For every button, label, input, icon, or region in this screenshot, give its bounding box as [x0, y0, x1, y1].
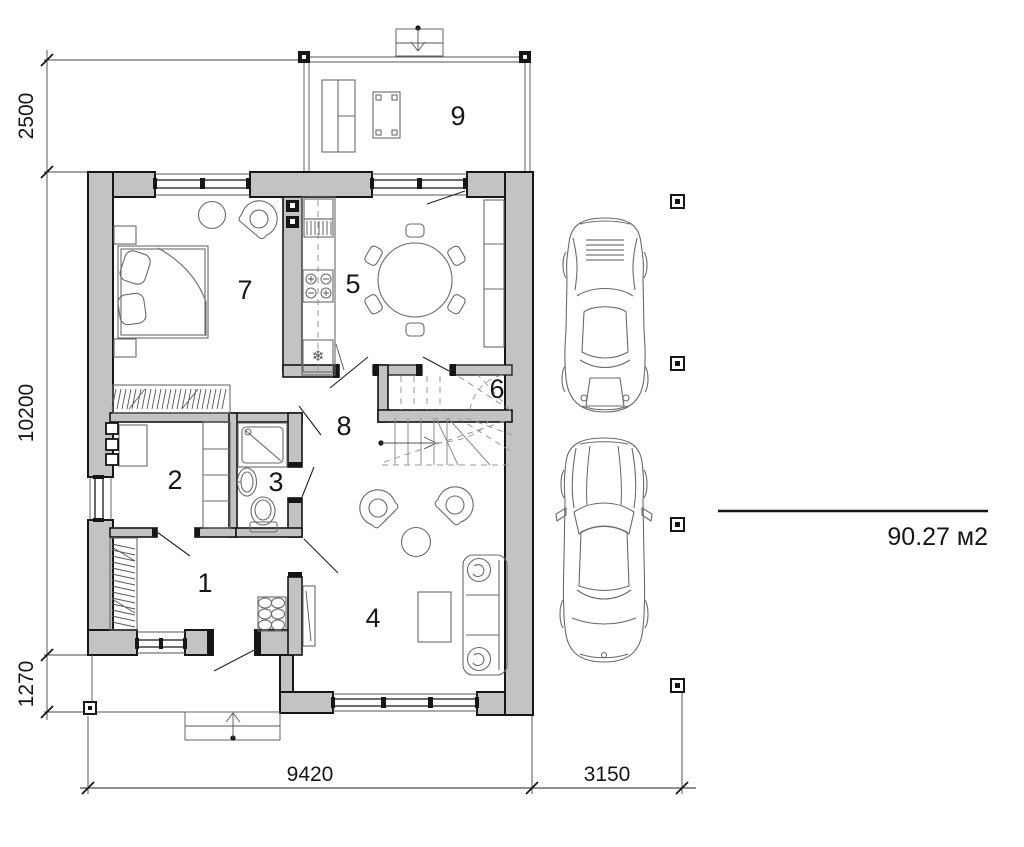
coffee-table-icon [402, 528, 431, 557]
shower-icon [238, 423, 287, 467]
nightstand-icon [114, 339, 136, 357]
mirror-icon [303, 586, 315, 646]
room-label-2: 2 [167, 465, 182, 495]
room-label-8: 8 [336, 411, 351, 441]
wardrobe-icon [203, 422, 230, 528]
porch-steps-icon [185, 712, 280, 741]
living-furniture [352, 479, 507, 675]
floor-plan-drawing: 2500 10200 1270 9420 3150 [0, 0, 1024, 847]
dim-left-2500: 2500 [15, 93, 38, 140]
kitchen-furniture: ❄ [302, 197, 504, 375]
dim-left-1270: 1270 [15, 661, 38, 708]
car-icon [556, 438, 652, 662]
sideboard-icon [484, 200, 504, 347]
armchair-icon [432, 479, 480, 527]
bed-icon [117, 246, 208, 338]
porch-post-icon [84, 702, 96, 714]
svg-text:❄: ❄ [312, 348, 325, 365]
room-label-6: 6 [489, 374, 504, 404]
bedroom-furniture [112, 193, 285, 413]
room-label-5: 5 [345, 269, 360, 299]
nightstand-icon [114, 226, 136, 244]
floor-plan-page: 2500 10200 1270 9420 3150 [0, 0, 1024, 847]
area-label: 90.27 м2 [887, 523, 988, 551]
toilet-icon [250, 497, 277, 532]
table-icon [418, 592, 451, 642]
room-label-9: 9 [450, 101, 465, 131]
terrace-step-icon [396, 25, 443, 56]
closet-icon [112, 385, 230, 413]
sofa-icon [463, 555, 507, 675]
bench-icon [258, 597, 286, 631]
hall-wardrobe-icon [110, 538, 137, 630]
car-icon [562, 218, 648, 412]
column-icon [671, 195, 684, 692]
terrace-table-icon [373, 92, 400, 138]
meter-box-icon [106, 423, 118, 465]
armchair-icon [236, 193, 284, 241]
terrace-bench-icon [322, 80, 355, 152]
carport [556, 195, 684, 692]
cooktop-icon [303, 270, 333, 302]
room-label-1: 1 [197, 568, 212, 598]
kitchen-counter-icon: ❄ [302, 197, 344, 375]
area-note: 90.27 м2 [718, 511, 988, 551]
dim-left-10200: 10200 [15, 384, 38, 442]
dim-bottom-3150: 3150 [584, 763, 631, 786]
room-label-3: 3 [268, 467, 283, 497]
room-label-7: 7 [237, 275, 252, 305]
washer-icon [119, 425, 147, 466]
armchair-icon [352, 482, 400, 530]
room-label-4: 4 [365, 603, 380, 633]
sink-icon [237, 468, 257, 496]
porch [84, 655, 280, 741]
dining-table-icon [363, 224, 466, 336]
terrace [298, 25, 531, 172]
stool-icon [199, 202, 226, 229]
dim-bottom-9420: 9420 [287, 763, 334, 786]
